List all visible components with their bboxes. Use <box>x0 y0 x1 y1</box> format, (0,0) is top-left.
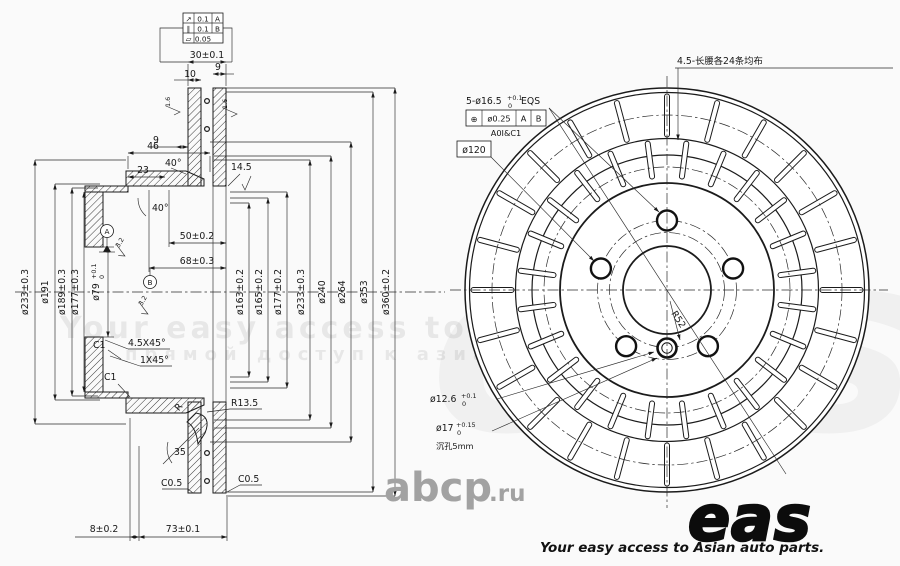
dia-360: ø360±0.2 <box>381 269 392 315</box>
hat-web-upper <box>85 186 128 192</box>
dia-353: ø353 <box>359 280 370 304</box>
datum-b-label: B <box>147 278 152 287</box>
flatness-symbol: ▱ <box>186 35 192 44</box>
position-datum-a: A <box>521 114 527 124</box>
bolt-holes-suffix: EQS <box>521 96 540 107</box>
roughness-16-left: 1.6 <box>164 97 172 107</box>
pin-hole-sub: 0 <box>462 400 466 408</box>
callout-c05-left: C0.5 <box>161 478 182 489</box>
dia-240: ø240 <box>317 280 328 304</box>
runout-symbol: ↗ <box>185 15 191 24</box>
dim-outer-plate: 10 <box>184 69 196 80</box>
datum-a-label: A <box>105 227 110 236</box>
catalog-image: eas Your easy access to Asian auto parts… <box>0 0 900 566</box>
abcp-site-tld: .ru <box>489 481 525 507</box>
bolt-holes-sub: 0 <box>508 102 512 110</box>
dia-264: ø264 <box>337 280 348 304</box>
dim-base-8: 8±0.2 <box>90 524 119 535</box>
dia-189: ø189±0.3 <box>57 269 68 315</box>
bolt-circle-label: ø120 <box>462 145 486 156</box>
runout-datum: A <box>215 15 220 24</box>
runout-value: 0.1 <box>197 15 209 24</box>
roughness-16-right: 1.6 <box>221 99 229 109</box>
counterbore-label: ø17 <box>436 423 454 434</box>
callout-c1-upper: C1 <box>93 340 105 351</box>
angle-flange-label: 40° <box>165 158 181 169</box>
position-tolerance: ø0.25 <box>487 114 510 124</box>
parallelism-value: 0.1 <box>197 25 209 34</box>
chamfer-note: A0I&C1 <box>491 128 522 138</box>
dim-depth-68: 68±0.3 <box>180 256 214 267</box>
callout-chamfer-45: 4.5X45° <box>128 338 166 349</box>
counterbore-sup: +0.15 <box>456 421 476 429</box>
bolt-hole <box>723 259 743 279</box>
dia-165: ø165±0.2 <box>254 269 265 315</box>
dia-233-left: ø233±0.3 <box>20 269 31 315</box>
dia-191: ø191 <box>40 280 51 304</box>
position-symbol: ⊕ <box>471 114 478 124</box>
dia-177-right: ø177±0.2 <box>273 269 284 315</box>
dia-bore-sub: 0 <box>98 275 106 279</box>
counterbore-sub: 0 <box>457 429 461 437</box>
counterbore-depth-note: 沉孔5mm <box>436 441 474 451</box>
callout-c1-lower: C1 <box>104 372 116 383</box>
dim-base-73: 73±0.1 <box>166 524 200 535</box>
dia-163: ø163±0.2 <box>235 269 246 315</box>
abcp-site-name: abcp <box>384 465 492 511</box>
dia-bore-sup: +0.1 <box>90 263 98 279</box>
dia-233-right: ø233±0.3 <box>296 269 307 315</box>
callout-angle-35: 35 <box>174 447 186 458</box>
hat-web-lower <box>85 392 128 398</box>
callout-r135: R13.5 <box>231 398 258 409</box>
callout-chamfer-1x45: 1X45° <box>140 355 169 366</box>
parallelism-datum: B <box>215 25 220 34</box>
slots-note: 4.5-长腰各24条均布 <box>677 55 763 67</box>
dim-hat-offset: 23 <box>137 165 149 176</box>
inner-plate-lower <box>213 402 226 493</box>
dia-177-left: ø177±0.3 <box>70 269 81 315</box>
outer-plate-upper <box>188 88 201 186</box>
bolt-holes-note: 5-ø16.5 <box>466 96 502 107</box>
hat-wall-upper <box>85 192 103 247</box>
dim-inner-plate: 9 <box>215 62 221 73</box>
parallelism-symbol: ∥ <box>187 25 191 34</box>
flatness-value: 0.05 <box>195 35 211 44</box>
dim-depth-50: 50±0.2 <box>180 231 214 242</box>
pin-hole-label: ø12.6 <box>430 394 456 405</box>
dim-overall-thickness: 30±0.1 <box>190 50 224 61</box>
position-datum-b: B <box>536 114 542 124</box>
dia-bore: ø79 <box>91 283 102 301</box>
bolt-hole <box>616 336 636 356</box>
dim-hat-height: 46 <box>147 141 159 152</box>
angle-cone-label: 40° <box>152 203 168 214</box>
brake-disc-drawing: eas Your easy access to Asian auto parts… <box>0 0 900 566</box>
bolt-hole <box>591 259 611 279</box>
pin-hole-sup: +0.1 <box>461 392 477 400</box>
eas-logo-tagline: Your easy access to Asian auto parts. <box>540 540 824 556</box>
dim-pad-depth: 14.5 <box>231 162 252 173</box>
callout-c05-right: C0.5 <box>238 474 259 485</box>
